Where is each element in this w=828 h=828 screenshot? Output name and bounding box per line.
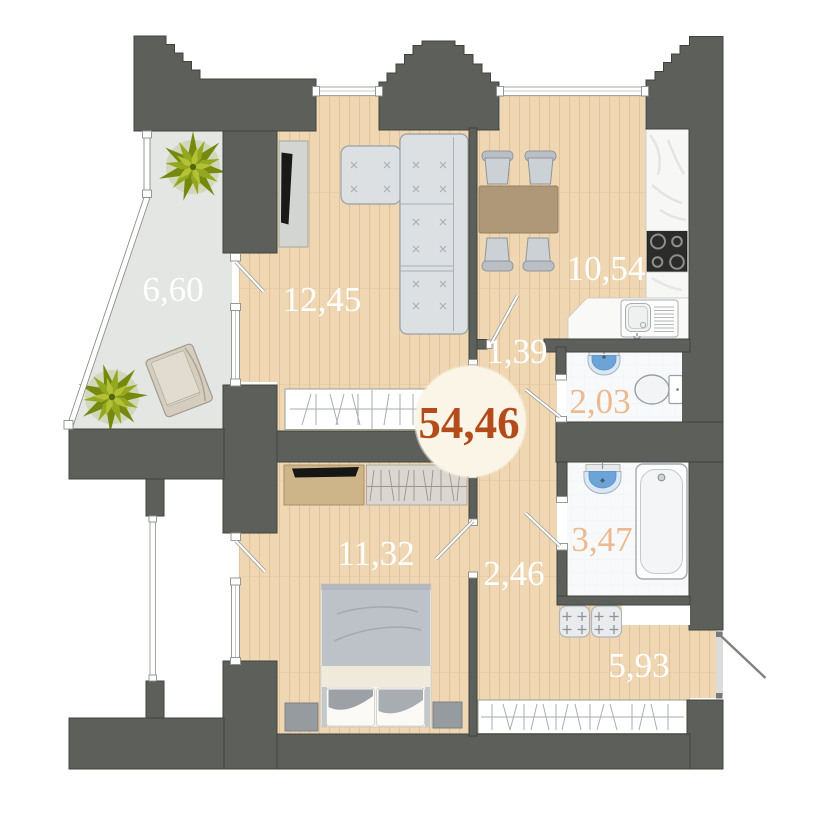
svg-text:12,45: 12,45 xyxy=(283,280,362,319)
svg-text:2,03: 2,03 xyxy=(569,382,630,421)
svg-text:11,32: 11,32 xyxy=(337,534,414,573)
svg-text:1,39: 1,39 xyxy=(486,332,547,371)
svg-text:5,93: 5,93 xyxy=(608,646,669,685)
svg-text:3,47: 3,47 xyxy=(571,520,632,559)
svg-text:10,54: 10,54 xyxy=(567,249,646,288)
svg-text:54,46: 54,46 xyxy=(418,398,519,448)
svg-text:2,46: 2,46 xyxy=(483,554,544,593)
svg-text:6,60: 6,60 xyxy=(142,270,203,309)
